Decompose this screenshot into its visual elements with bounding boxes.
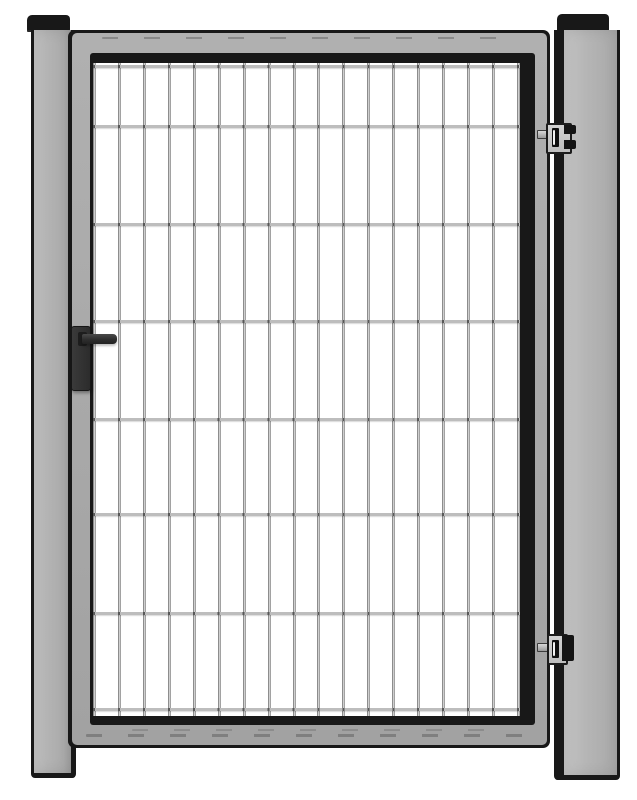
mesh-wire-vertical xyxy=(193,63,196,716)
hinge-slot xyxy=(552,640,559,658)
mesh-wire-vertical xyxy=(367,63,370,716)
gate-illustration: Catalog illustration of a single-leaf ga… xyxy=(0,0,637,800)
mesh-wire-vertical xyxy=(218,63,221,716)
hinge-pin-icon xyxy=(553,130,555,145)
frame-texture-streak xyxy=(86,734,527,737)
mesh-wire-vertical xyxy=(243,63,246,716)
mesh-panel xyxy=(93,63,520,716)
gate-frame xyxy=(68,30,550,748)
mesh-wire-vertical xyxy=(492,63,495,716)
mesh-wire-vertical xyxy=(317,63,320,716)
mesh-wire-vertical xyxy=(442,63,445,716)
mesh-wire-vertical xyxy=(342,63,345,716)
mesh-wire-horizontal xyxy=(93,418,520,421)
hinge-bottom xyxy=(537,633,577,663)
mesh-wire-vertical xyxy=(517,63,520,716)
mesh-wire-vertical xyxy=(168,63,171,716)
hinge-top xyxy=(537,121,577,153)
mesh-wire-horizontal xyxy=(93,223,520,226)
mesh-wire-vertical xyxy=(143,63,146,716)
mesh-wire-horizontal xyxy=(93,65,520,68)
mesh-wire-horizontal xyxy=(93,612,520,615)
frame-texture-streak xyxy=(102,37,507,39)
hinge-tab xyxy=(564,125,576,134)
mesh-wire-vertical xyxy=(467,63,470,716)
hinge-tab xyxy=(562,635,574,661)
mesh-wire-vertical xyxy=(293,63,296,716)
mesh-wire-horizontal xyxy=(93,320,520,323)
mesh-wire-horizontal xyxy=(93,513,520,516)
hinge-tab xyxy=(564,140,576,149)
mesh-wire-vertical xyxy=(268,63,271,716)
lever-handle xyxy=(82,334,117,344)
mesh-wire-vertical xyxy=(392,63,395,716)
mesh-wire-horizontal xyxy=(93,125,520,128)
hinge-slot xyxy=(552,128,559,147)
mesh-wire-vertical xyxy=(417,63,420,716)
mesh-wire-vertical xyxy=(93,63,96,716)
hinge-pin-icon xyxy=(553,642,555,656)
frame-texture-streak xyxy=(132,729,487,731)
mesh-wire-horizontal xyxy=(93,708,520,711)
mesh-wire-vertical xyxy=(118,63,121,716)
